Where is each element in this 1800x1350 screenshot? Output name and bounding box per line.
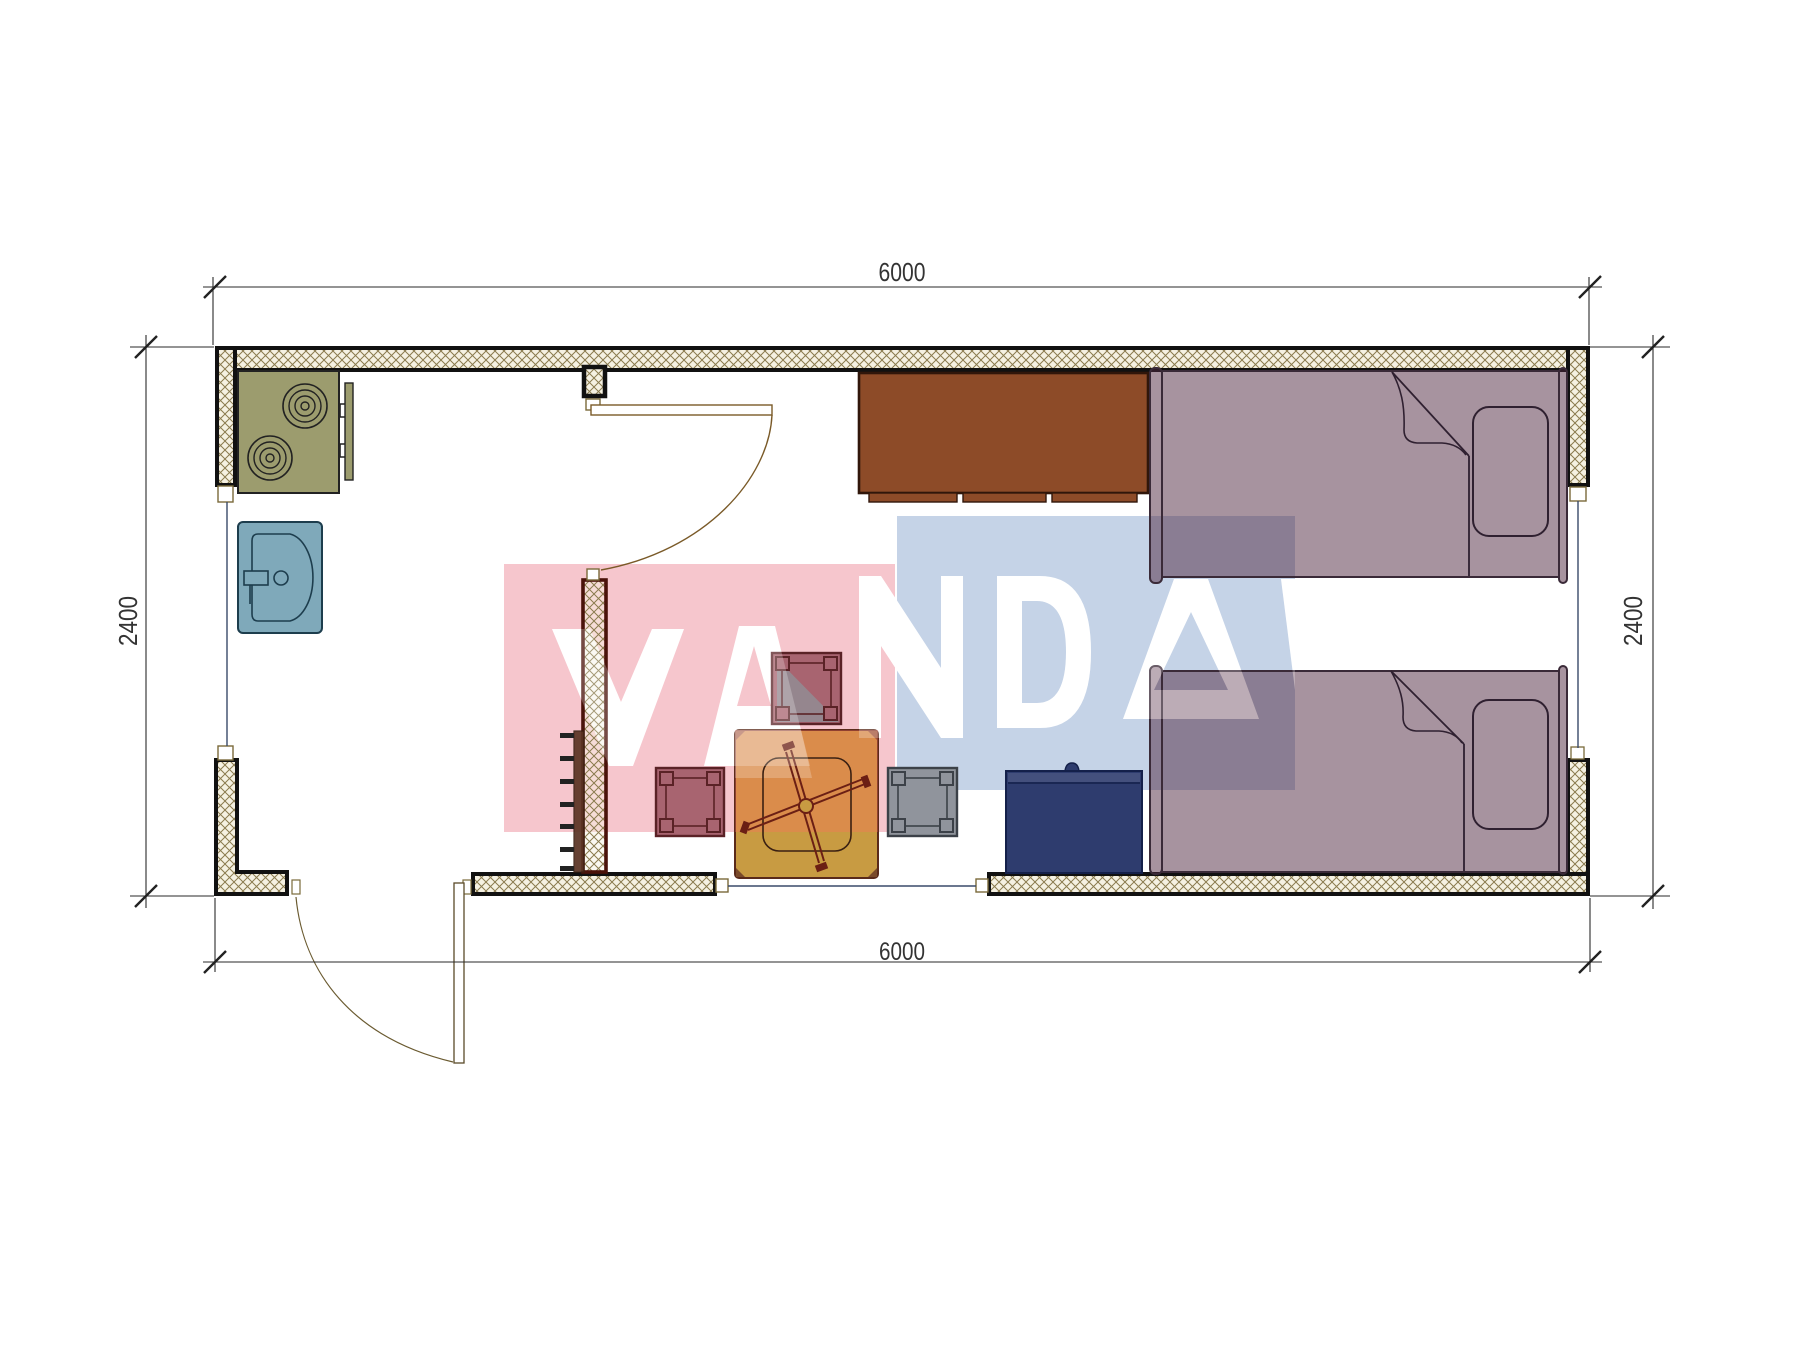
svg-text:6000: 6000: [879, 257, 926, 287]
svg-text:2400: 2400: [1618, 596, 1648, 646]
svg-text:6000: 6000: [879, 938, 925, 966]
svg-text:2400: 2400: [113, 596, 143, 646]
